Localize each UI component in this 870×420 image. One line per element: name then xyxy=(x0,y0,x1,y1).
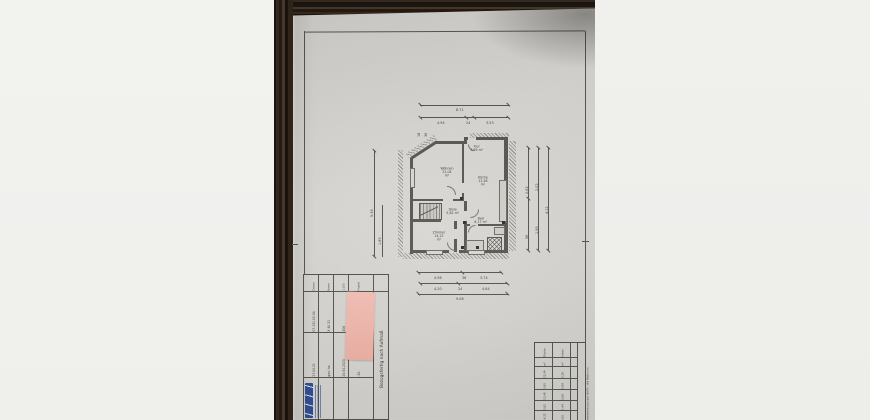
title-block-header: Projekt xyxy=(357,282,360,291)
room-label-flur: Flur3,95 m² xyxy=(462,143,492,162)
title-block-date2: 25.04.2023 xyxy=(342,359,346,377)
area-table-cell: 3,55 xyxy=(561,415,564,420)
area-table-cell: 12,46 xyxy=(543,392,546,400)
dim-label: 24 xyxy=(466,112,475,131)
area-table-cell: m² xyxy=(561,363,564,367)
title-block-index: -20- xyxy=(357,370,361,376)
area-table-row: Σ 6 5 4 3 2 1 Nr. xyxy=(571,343,578,420)
wall-segment xyxy=(476,137,507,140)
dim-label: 9.08 xyxy=(456,288,472,307)
title-block-drawn-by: gez. ha xyxy=(327,365,331,376)
dim-label: 4.94 xyxy=(437,112,453,131)
room-label-bad: Bad6,17 m² xyxy=(466,215,496,234)
dim-label: 4.12 xyxy=(545,205,561,224)
column-post xyxy=(502,221,505,224)
window-symbol xyxy=(468,250,485,255)
area-table-cell: 3,95 xyxy=(543,383,546,389)
area-table-cell: 3,08 xyxy=(561,394,564,400)
company-logo-address-lines xyxy=(315,385,321,418)
dim-line xyxy=(548,147,549,251)
area-table-cell: Anteil xyxy=(561,349,564,357)
dim-label: 1.89 xyxy=(378,236,394,255)
area-table-cell: m² xyxy=(543,363,546,367)
area-table-cell: 1,44 xyxy=(561,405,564,411)
area-table-cell: 14,22 xyxy=(543,414,546,420)
wall-segment-interior xyxy=(412,199,443,202)
area-table-cell: 0,99 xyxy=(561,383,564,389)
wall-segment xyxy=(464,137,468,140)
dim-line xyxy=(374,150,375,257)
area-table-title-strip: Wohnflächenberechnung nach WoFlV – alle … xyxy=(578,343,597,420)
hatch-band-right xyxy=(509,141,516,251)
room-label-diele: Diele5,82 m² xyxy=(438,206,468,225)
title-block-scale: 1:100 xyxy=(342,283,345,291)
hatch-band-bottom xyxy=(403,253,509,259)
room-label-kueche: Küche12,46 m² xyxy=(468,176,498,201)
area-table-cell: 5,26 xyxy=(561,372,564,378)
area-table-cell: 21,04 xyxy=(543,371,546,379)
kitchen-counter xyxy=(499,180,507,222)
title-block-order-number: X 40 31 xyxy=(327,320,331,332)
title-block-date: 27.04.21 xyxy=(312,363,316,377)
sticky-note xyxy=(345,292,374,361)
title-block-note: Bezugsfertig nach Aufmaß xyxy=(378,330,384,419)
room-label-wohnen: Wohnen21,04 m² xyxy=(432,167,462,192)
floor-plan: Wohnen21,04 m² Flur3,95 m² Küche12,46 m²… xyxy=(0,0,870,420)
dim-label: 36 xyxy=(424,128,433,147)
column-post xyxy=(461,246,464,249)
area-table-row: 80,54 14,22 5,82 12,46 3,95 21,04 m² Flä… xyxy=(535,343,553,420)
room-label-zimmer: Zimmer14,22 m² xyxy=(424,231,454,256)
title-block-header: Name xyxy=(327,283,330,291)
company-logo-wordmark xyxy=(305,383,313,418)
area-table-cell: 5,82 xyxy=(543,405,546,411)
hatch-band-left xyxy=(398,150,403,257)
shower xyxy=(487,237,502,252)
dim-label: 3.53 xyxy=(486,112,502,131)
area-table-cell: Fläche xyxy=(543,348,546,357)
dim-label: 9.36 xyxy=(370,208,386,227)
dim-label: 96 xyxy=(525,230,534,249)
area-table-row: 20,14 3,55 1,44 3,08 0,99 5,26 m² Anteil xyxy=(553,343,571,420)
area-table: 80,54 14,22 5,82 12,46 3,95 21,04 m² Flä… xyxy=(534,342,586,420)
area-table-title: Wohnflächenberechnung nach WoFlV – alle … xyxy=(586,368,589,420)
photo-of-floor-plan: Wohnen21,04 m² Flur3,95 m² Küche12,46 m²… xyxy=(0,0,870,420)
title-block-header: Datum xyxy=(312,282,315,291)
title-block-column: Bezugsfertig nach Aufmaß xyxy=(374,275,388,419)
column-post xyxy=(460,197,463,200)
company-logo xyxy=(305,380,332,418)
title-block-plan-number: 07.131.02-04 xyxy=(312,312,316,333)
window-symbol xyxy=(410,168,415,188)
